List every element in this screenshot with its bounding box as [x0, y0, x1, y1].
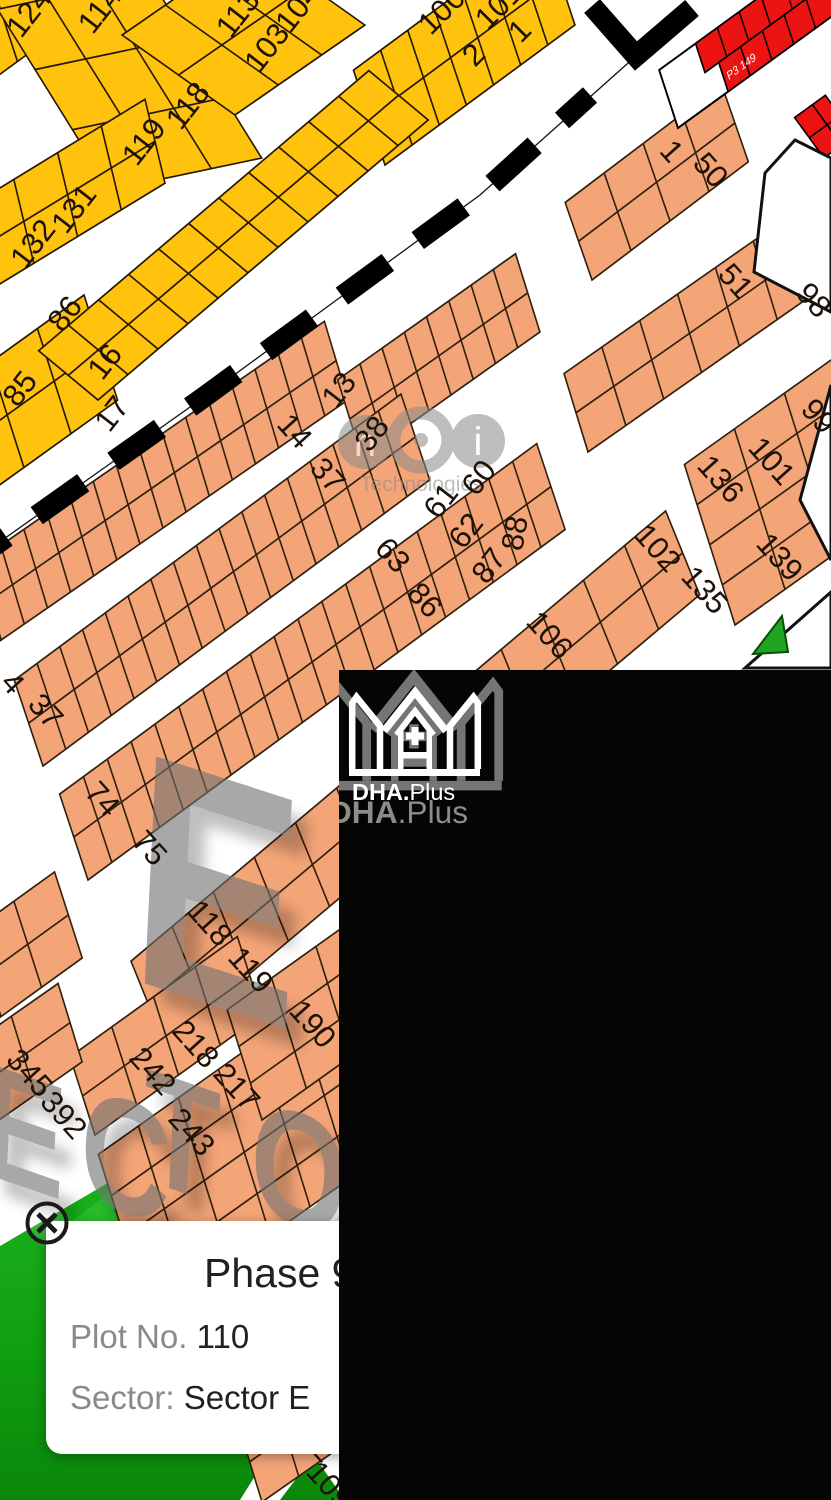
svg-text:DHA.Plus: DHA.Plus [352, 779, 455, 805]
svg-text:88: 88 [494, 513, 534, 553]
